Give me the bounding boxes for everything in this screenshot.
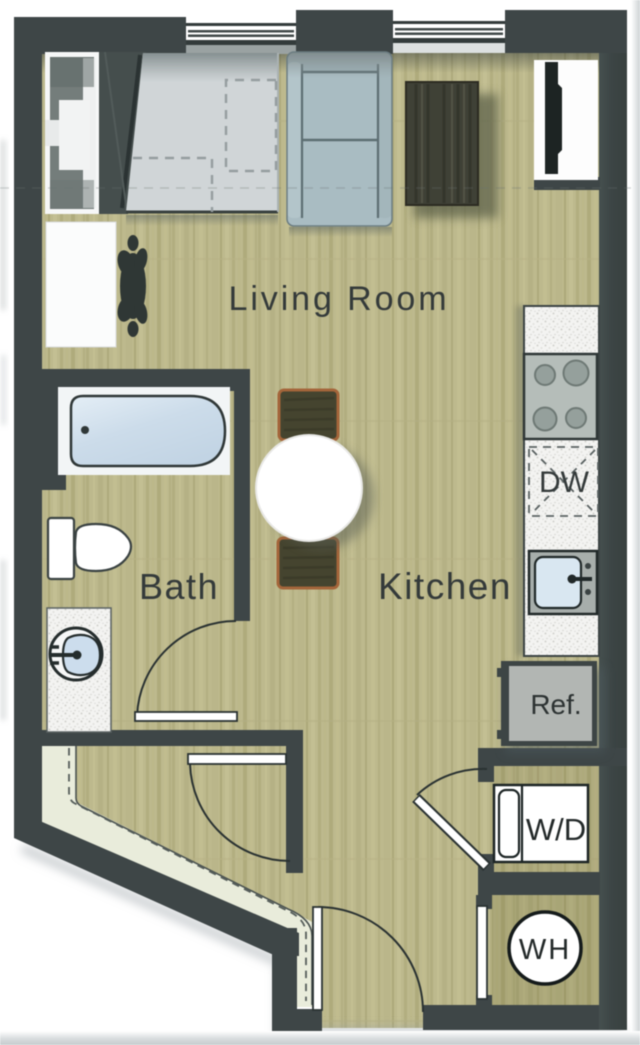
svg-text:DW: DW — [539, 466, 590, 499]
svg-text:Ref.: Ref. — [530, 689, 581, 720]
svg-text:Living Room: Living Room — [229, 280, 450, 318]
svg-text:WH: WH — [519, 934, 571, 966]
svg-text:Kitchen: Kitchen — [378, 566, 512, 607]
svg-text:W/D: W/D — [526, 812, 586, 847]
svg-text:Bath: Bath — [139, 566, 219, 607]
